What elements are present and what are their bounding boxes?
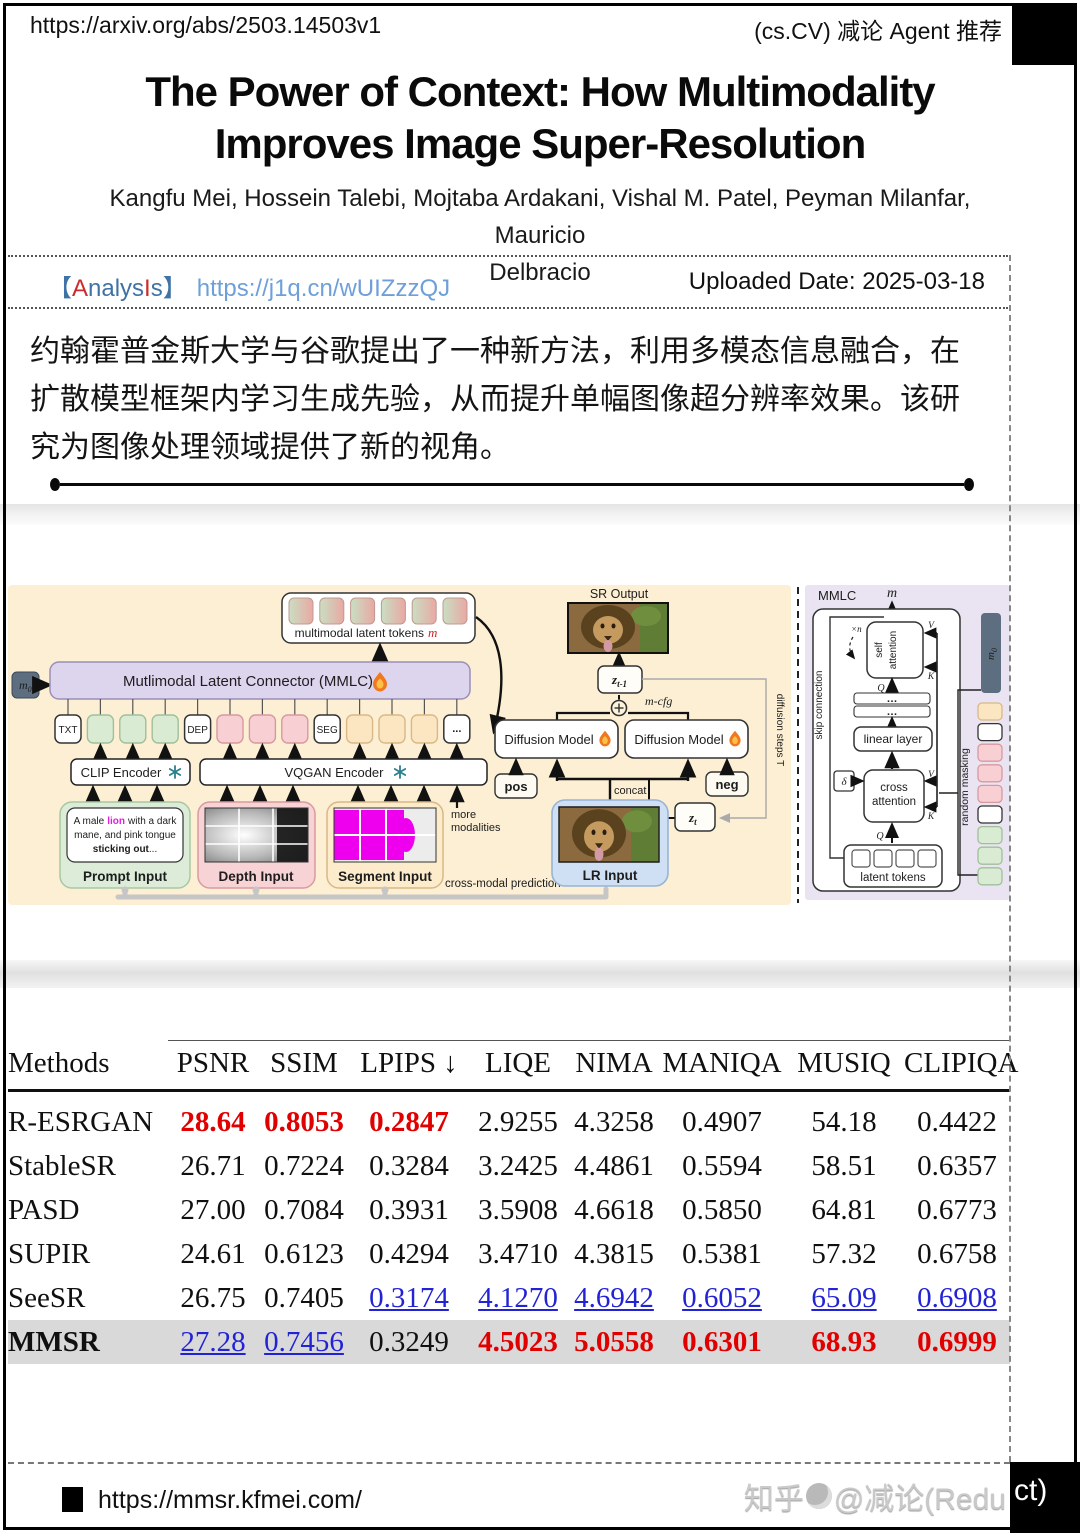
column-header: MANIQA — [660, 1041, 784, 1091]
concat-label: concat — [614, 785, 646, 797]
value-cell: 64.81 — [784, 1188, 904, 1232]
mmlc-panel-title: MMLC — [818, 588, 856, 603]
chinese-summary: 约翰霍普金斯大学与谷歌提出了一种新方法，利用多模态信息融合，在扩散模型框架内学习… — [30, 328, 982, 472]
vqgan-encoder-label: VQGAN Encoder — [285, 765, 385, 780]
value-cell: 28.64 — [168, 1091, 258, 1145]
svg-text:attention: attention — [872, 796, 916, 808]
column-header: SSIM — [258, 1041, 350, 1091]
svg-text:sticking out...: sticking out... — [93, 844, 157, 855]
column-header: CLIPIQA — [904, 1041, 1010, 1091]
table-row: StableSR26.710.72240.32843.24254.48610.5… — [8, 1144, 1010, 1188]
value-cell: 65.09 — [784, 1276, 904, 1320]
value-cell: 3.4710 — [468, 1232, 568, 1276]
clip-encoder-label: CLIP Encoder — [81, 765, 162, 780]
lr-input-caption: LR Input — [583, 868, 638, 883]
delta-label: δ — [841, 776, 847, 788]
uploaded-date: Uploaded Date: 2025-03-18 — [689, 268, 985, 296]
prompt-input-caption: Prompt Input — [83, 869, 167, 884]
sr-output-image — [568, 603, 668, 653]
architecture-figure: multimodal latent tokensm m0 Mutlimodal … — [8, 575, 1010, 905]
value-cell: 0.3174 — [350, 1276, 468, 1320]
value-cell: 4.6618 — [568, 1188, 660, 1232]
column-header: LIQE — [468, 1041, 568, 1091]
self-attention-label: self — [874, 642, 885, 658]
method-cell: StableSR — [8, 1144, 168, 1188]
results-table-body: R-ESRGAN28.640.80530.28472.92554.32580.4… — [8, 1091, 1010, 1365]
pos-label: pos — [504, 779, 527, 794]
column-header: NIMA — [568, 1041, 660, 1091]
table-row: SUPIR24.610.61230.42943.47104.38150.5381… — [8, 1232, 1010, 1276]
value-cell: 26.75 — [168, 1276, 258, 1320]
latent-tokens-caption: latent tokens — [860, 872, 925, 884]
dotted-separator-mid — [8, 307, 1008, 309]
topbar-tag: (cs.CV) 减论 Agent 推荐 — [754, 12, 1002, 46]
value-cell: 2.9255 — [468, 1091, 568, 1145]
diffusion-steps-label: diffusion steps T — [774, 694, 785, 766]
linear-layer-label: linear layer — [864, 732, 923, 746]
value-cell: 0.7405 — [258, 1276, 350, 1320]
value-cell: 57.32 — [784, 1232, 904, 1276]
analysis-bracket-open: 【 — [48, 275, 72, 302]
q-label: Q — [877, 683, 885, 694]
column-header: PSNR — [168, 1041, 258, 1091]
value-cell: 0.2847 — [350, 1091, 468, 1145]
value-cell: 58.51 — [784, 1144, 904, 1188]
value-cell: 4.3258 — [568, 1091, 660, 1145]
method-cell: SeeSR — [8, 1276, 168, 1320]
value-cell: 3.2425 — [468, 1144, 568, 1188]
diffusion-model-label: Diffusion Model — [504, 732, 593, 747]
results-table-head-row: MethodsPSNRSSIMLPIPS ↓LIQENIMAMANIQAMUSI… — [8, 1041, 1010, 1091]
paper-title-line1: The Power of Context: How Multimodality — [20, 66, 1060, 118]
lr-input-card: LR Input — [552, 800, 668, 886]
column-header: Methods — [8, 1041, 168, 1091]
cross-attention-label: cross — [880, 782, 908, 794]
table-row: PASD27.000.70840.39313.59084.66180.58506… — [8, 1188, 1010, 1232]
value-cell: 0.6301 — [660, 1320, 784, 1364]
value-cell: 5.0558 — [568, 1320, 660, 1364]
value-cell: 0.3249 — [350, 1320, 468, 1364]
diffusion-model-label: Diffusion Model — [634, 732, 723, 747]
square-bullet-icon — [62, 1487, 83, 1512]
divider-line — [60, 483, 964, 486]
value-cell: 3.5908 — [468, 1188, 568, 1232]
svg-text:…: … — [887, 693, 898, 705]
paper-authors-line1: Kangfu Mei, Hossein Talebi, Mojtaba Arda… — [70, 180, 1010, 254]
value-cell: 0.7084 — [258, 1188, 350, 1232]
corner-black-square — [1012, 3, 1077, 65]
value-cell: 27.28 — [168, 1320, 258, 1364]
scroll-shadow-top — [0, 504, 1080, 525]
neg-label: neg — [715, 777, 738, 792]
value-cell: 0.3931 — [350, 1188, 468, 1232]
page: https://arxiv.org/abs/2503.14503v1 (cs.C… — [0, 0, 1080, 1533]
value-cell: 54.18 — [784, 1091, 904, 1145]
divider-dot-right — [964, 478, 974, 491]
paper-title: The Power of Context: How Multimodality … — [20, 66, 1060, 170]
segment-input-caption: Segment Input — [338, 869, 432, 884]
value-cell: 0.4907 — [660, 1091, 784, 1145]
depth-input-card: Depth Input — [198, 802, 315, 888]
masking-squares — [978, 703, 1002, 885]
value-cell: 4.6942 — [568, 1276, 660, 1320]
vertical-dashed-rule — [1009, 255, 1011, 1462]
value-cell: 0.8053 — [258, 1091, 350, 1145]
value-cell: 0.6052 — [660, 1276, 784, 1320]
value-cell: 27.00 — [168, 1188, 258, 1232]
svg-text:K: K — [927, 812, 935, 822]
arxiv-url[interactable]: https://arxiv.org/abs/2503.14503v1 — [30, 12, 381, 39]
svg-text:mane, and pink tongue: mane, and pink tongue — [74, 830, 176, 841]
prompt-input-card: A malelionwith a dark mane, and pink ton… — [60, 802, 190, 888]
value-cell: 0.6999 — [904, 1320, 1010, 1364]
method-cell: R-ESRGAN — [8, 1091, 168, 1145]
dep-token: DEP — [187, 725, 208, 736]
table-row: R-ESRGAN28.640.80530.28472.92554.32580.4… — [8, 1091, 1010, 1145]
value-cell: 0.7224 — [258, 1144, 350, 1188]
m-output-label: m — [887, 586, 897, 601]
value-cell: 4.3815 — [568, 1232, 660, 1276]
analysis-bracket-close: 】 — [163, 275, 187, 302]
value-cell: 0.3284 — [350, 1144, 468, 1188]
value-cell: 0.4422 — [904, 1091, 1010, 1145]
k-label: K — [927, 672, 935, 682]
table-row: MMSR27.280.74560.32494.50235.05580.63016… — [8, 1320, 1010, 1364]
skip-connection-label: skip connection — [814, 671, 825, 740]
watermark: 知乎 @减论(Redu — [744, 1474, 1006, 1518]
seg-token: SEG — [317, 725, 338, 736]
column-header: LPIPS ↓ — [350, 1041, 468, 1091]
mmlc-bar-label: Mutlimodal Latent Connector (MMLC) — [123, 673, 373, 690]
analysis-link[interactable]: https://j1q.cn/wUIZzzQJ — [197, 275, 450, 302]
random-masking-label: random masking — [959, 748, 971, 826]
value-cell: 4.4861 — [568, 1144, 660, 1188]
value-cell: 0.6758 — [904, 1232, 1010, 1276]
xn-label: ×n — [851, 624, 862, 634]
value-cell: 4.1270 — [468, 1276, 568, 1320]
txt-token: TXT — [59, 725, 78, 736]
dot-divider — [50, 478, 974, 491]
results-table: MethodsPSNRSSIMLPIPS ↓LIQENIMAMANIQAMUSI… — [8, 1040, 1010, 1364]
divider-dot-left — [50, 478, 60, 491]
value-cell: 0.6123 — [258, 1232, 350, 1276]
analysis-row: 【AnalysIs】https://j1q.cn/wUIZzzQJ — [48, 268, 450, 303]
depth-input-caption: Depth Input — [219, 869, 294, 884]
cross-modal-label: cross-modal prediction — [445, 878, 561, 890]
value-cell: 0.4294 — [350, 1232, 468, 1276]
reduct-logo-icon — [806, 1483, 832, 1509]
more-token: ... — [452, 723, 461, 735]
dotted-separator-top — [8, 255, 1008, 257]
table-row: SeeSR26.750.74050.31744.12704.69420.6052… — [8, 1276, 1010, 1320]
watermark-black-box: ct) — [1010, 1462, 1080, 1533]
column-header: MUSIQ — [784, 1041, 904, 1091]
mcfg-label: m-cfg — [645, 694, 672, 708]
latent-tokens-caption: multimodal latent tokensm — [295, 625, 438, 640]
analysis-label: A — [72, 275, 88, 302]
value-cell: 24.61 — [168, 1232, 258, 1276]
method-cell: MMSR — [8, 1320, 168, 1364]
method-cell: PASD — [8, 1188, 168, 1232]
value-cell: 0.5850 — [660, 1188, 784, 1232]
value-cell: 0.6773 — [904, 1188, 1010, 1232]
value-cell: 0.6357 — [904, 1144, 1010, 1188]
svg-text:…: … — [887, 706, 898, 718]
svg-text:attention: attention — [888, 631, 899, 669]
project-url[interactable]: https://mmsr.kfmei.com/ — [98, 1486, 362, 1515]
scroll-shadow-bottom — [0, 960, 1080, 988]
value-cell: 0.5594 — [660, 1144, 784, 1188]
value-cell: 0.6908 — [904, 1276, 1010, 1320]
svg-text:Q: Q — [876, 831, 884, 842]
value-cell: 4.5023 — [468, 1320, 568, 1364]
value-cell: 26.71 — [168, 1144, 258, 1188]
segment-input-card: Segment Input — [327, 802, 443, 888]
value-cell: 68.93 — [784, 1320, 904, 1364]
paper-title-line2: Improves Image Super-Resolution — [20, 118, 1060, 170]
value-cell: 0.5381 — [660, 1232, 784, 1276]
dashed-separator-bottom — [8, 1462, 1010, 1464]
sr-output-label: SR Output — [590, 587, 649, 601]
value-cell: 0.7456 — [258, 1320, 350, 1364]
method-cell: SUPIR — [8, 1232, 168, 1276]
